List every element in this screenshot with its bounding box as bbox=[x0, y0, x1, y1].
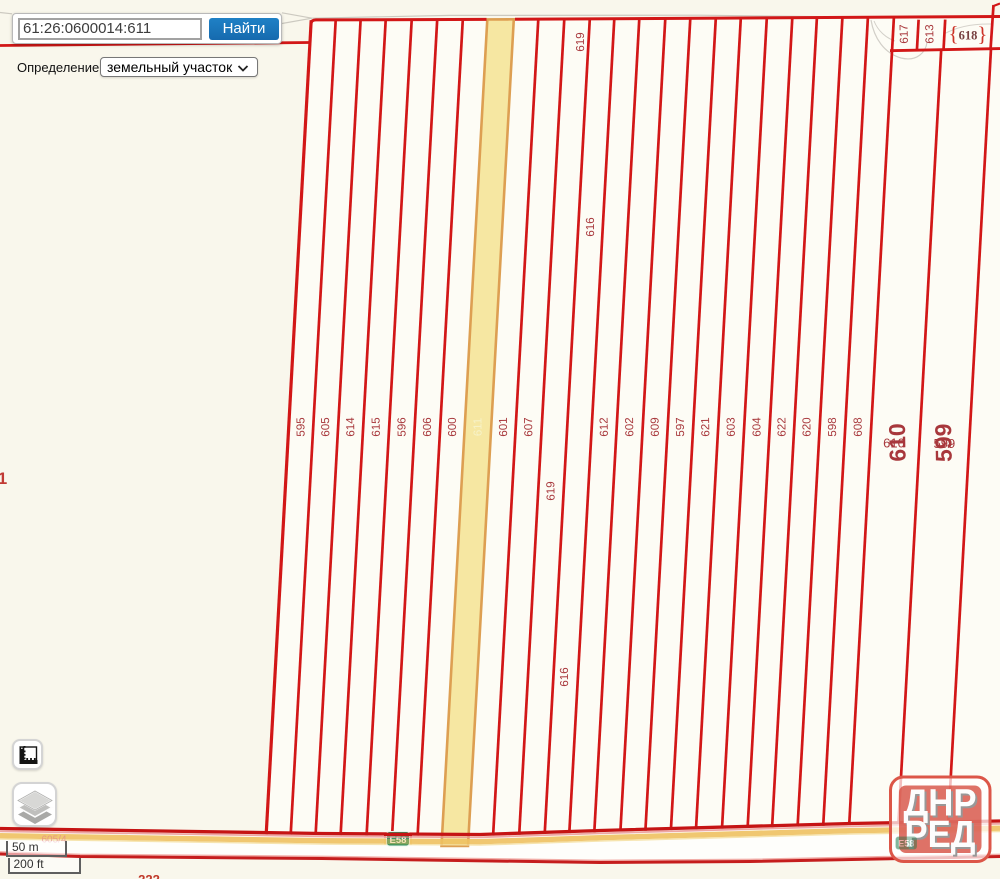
svg-text:600: 600 bbox=[446, 417, 459, 437]
svg-text:602: 602 bbox=[623, 417, 636, 437]
svg-text:E58: E58 bbox=[898, 838, 914, 848]
svg-text:605: 605 bbox=[319, 417, 332, 437]
svg-text:614: 614 bbox=[344, 417, 357, 437]
svg-text:599: 599 bbox=[934, 436, 956, 451]
svg-text:597: 597 bbox=[674, 417, 687, 437]
svg-text:622: 622 bbox=[775, 417, 788, 437]
svg-text:621: 621 bbox=[699, 417, 712, 437]
svg-text:222: 222 bbox=[138, 872, 160, 879]
svg-text:603: 603 bbox=[725, 417, 738, 437]
svg-text:617: 617 bbox=[898, 24, 911, 44]
svg-text:604: 604 bbox=[750, 417, 763, 437]
svg-text:608: 608 bbox=[852, 417, 865, 437]
svg-text:619: 619 bbox=[574, 32, 587, 52]
svg-text:607: 607 bbox=[522, 417, 535, 437]
svg-text:610: 610 bbox=[883, 436, 905, 451]
svg-text:619: 619 bbox=[544, 481, 557, 501]
svg-text:606: 606 bbox=[421, 417, 434, 437]
svg-text:616: 616 bbox=[584, 217, 597, 237]
svg-text:РЕД: РЕД bbox=[905, 814, 976, 856]
svg-text:595: 595 bbox=[294, 417, 307, 437]
svg-text:620: 620 bbox=[800, 417, 813, 437]
svg-text:612: 612 bbox=[598, 417, 611, 437]
svg-text:598: 598 bbox=[826, 417, 839, 437]
svg-text:615: 615 bbox=[370, 417, 383, 437]
svg-text:611: 611 bbox=[471, 418, 484, 437]
svg-text:1: 1 bbox=[0, 469, 7, 488]
svg-text:616: 616 bbox=[558, 667, 571, 687]
svg-text:601: 601 bbox=[497, 417, 510, 437]
svg-text:596: 596 bbox=[395, 417, 408, 437]
svg-text:613: 613 bbox=[923, 24, 936, 44]
svg-text:609: 609 bbox=[649, 417, 662, 437]
